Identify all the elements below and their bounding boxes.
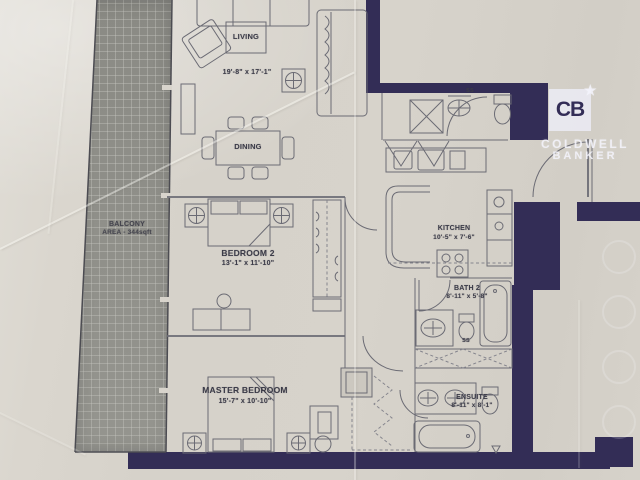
balcony-label: BALCONY — [101, 221, 153, 228]
bedroom2-label: BEDROOM 2 — [210, 249, 286, 258]
bedroom2-dims: 13'-1" x 11'-10" — [210, 260, 286, 267]
bath2-dims: 8'-11" x 5'-8" — [441, 294, 493, 301]
master-label: MASTER BEDROOM — [202, 386, 288, 395]
powder-ss-code: SS — [463, 89, 477, 95]
kitchen-dims: 10'-5" x 7'-6" — [426, 235, 482, 242]
balcony-area-label: AREA - 344sqft — [94, 230, 160, 237]
paper-crease-vertical — [354, 0, 356, 480]
living-label: LIVING — [226, 33, 266, 41]
master-dims: 15'-7" x 10'-10" — [208, 398, 282, 405]
watermark-coldwell: COLDWELL — [527, 137, 640, 151]
bath2-label: BATH 2 — [445, 285, 489, 292]
bath2-ss-code: SS — [459, 339, 473, 345]
linen-closet — [415, 349, 512, 368]
ghost-watermark-circle — [602, 240, 636, 274]
watermark-banker: BANKER — [527, 150, 640, 162]
paper-crease-vertical-right — [578, 300, 580, 468]
living-dims: 19'-8" x 17'-1" — [212, 69, 282, 76]
powder-room-fixtures — [383, 95, 511, 166]
ghost-watermark-circle — [602, 350, 636, 384]
living-furniture — [181, 0, 367, 134]
ensuite-label: ENSUITE — [448, 394, 496, 401]
ensuite-dims: 8'-11" x 8'-1" — [444, 403, 500, 410]
ensuite-fixtures — [400, 368, 500, 453]
kitchen-label: KITCHEN — [430, 225, 478, 232]
logo-star-icon: ★ — [584, 82, 597, 99]
hallway-doors-laundry — [341, 197, 412, 450]
floor-plan-photo: LIVING 19'-8" x 17'-1" DINING KITCHEN 10… — [0, 0, 640, 480]
kitchen-fixtures — [382, 93, 512, 277]
dining-label: DINING — [220, 143, 276, 151]
ghost-watermark-circle — [602, 295, 636, 329]
plan-linework — [0, 0, 640, 480]
ghost-watermark-circle — [602, 405, 636, 439]
